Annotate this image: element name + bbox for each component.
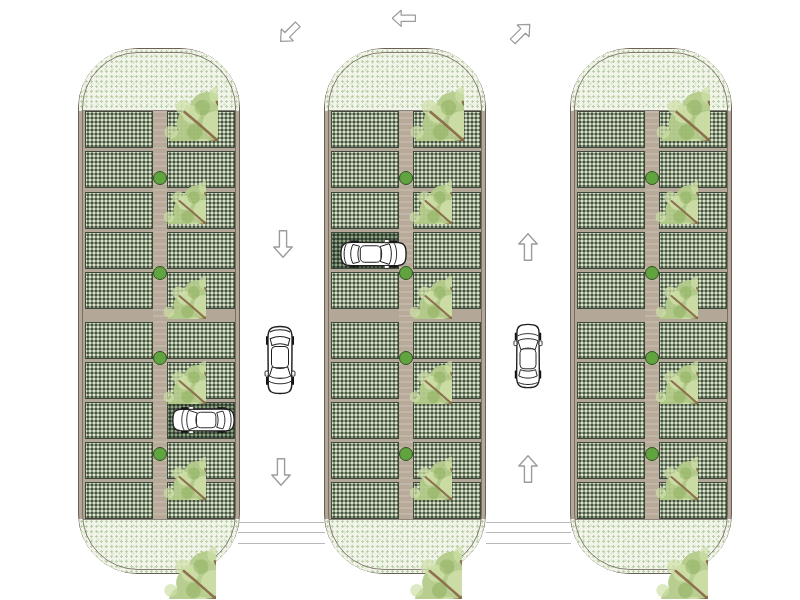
direction-arrow-icon <box>273 17 304 48</box>
large-tree-icon <box>350 487 462 599</box>
tree-trunk-marker <box>153 351 167 365</box>
direction-arrow-icon <box>518 455 538 483</box>
tree-trunk-marker <box>645 266 659 280</box>
tree-trunk-marker <box>645 351 659 365</box>
arrow-lane-left-down-lower <box>271 458 291 486</box>
tree-trunk-marker <box>399 171 413 185</box>
arrow-top-exit-southwest <box>273 17 304 48</box>
direction-arrow-icon <box>271 458 291 486</box>
car-driving-lane-left <box>263 322 297 398</box>
large-tree-icon <box>596 487 708 599</box>
arrow-lane-right-up-lower <box>518 455 538 483</box>
tree-trunk-marker <box>399 447 413 461</box>
arrow-top-flow-left <box>392 9 417 27</box>
curb-line <box>238 532 325 533</box>
arrow-top-entry-northeast <box>505 17 536 48</box>
direction-arrow-icon <box>518 233 538 261</box>
tree-trunk-marker <box>645 171 659 185</box>
tree-trunk-marker <box>645 447 659 461</box>
parking-island-middle <box>324 48 486 574</box>
parking-island-left <box>78 48 240 574</box>
tree-trunk-marker <box>399 351 413 365</box>
arrow-lane-left-down-upper <box>273 230 293 258</box>
tree-trunk-marker <box>153 447 167 461</box>
direction-arrow-icon <box>505 17 536 48</box>
large-tree-icon <box>348 25 464 141</box>
parking-plan-canvas <box>0 0 800 600</box>
direction-arrow-icon <box>273 230 293 258</box>
tree-trunk-marker <box>153 266 167 280</box>
large-tree-icon <box>594 25 710 141</box>
large-tree-icon <box>104 487 216 599</box>
car-icon <box>263 322 297 398</box>
direction-arrow-icon <box>392 9 417 27</box>
parking-island-right <box>570 48 732 574</box>
curb-line <box>486 543 571 544</box>
car-icon <box>512 319 544 393</box>
arrow-lane-right-up-upper <box>518 233 538 261</box>
large-tree-icon <box>102 25 218 141</box>
curb-line <box>486 532 571 533</box>
curb-line <box>238 522 325 523</box>
car-driving-lane-right <box>512 319 544 393</box>
tree-trunk-marker <box>399 266 413 280</box>
curb-line <box>238 543 325 544</box>
tree-trunk-marker <box>153 171 167 185</box>
curb-line <box>486 522 571 523</box>
